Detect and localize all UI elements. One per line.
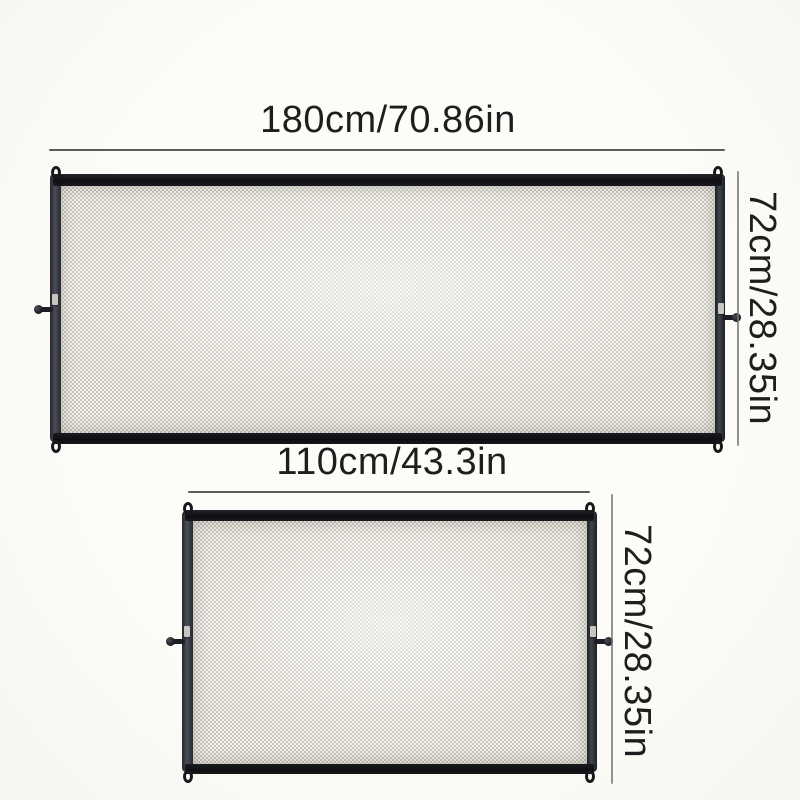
side-hook-icon	[594, 637, 611, 646]
hook-mount-tag	[184, 626, 190, 637]
gate-small-height-label: 72cm/28.35in	[616, 509, 656, 774]
side-hook-icon	[168, 637, 185, 646]
corner-loop-icon	[183, 502, 193, 515]
gate-large-height-label: 72cm/28.35in	[741, 173, 781, 444]
gate-small-bottom-bar	[185, 764, 594, 774]
gate-large-graphic	[50, 172, 725, 444]
gate-small-width-dimension-line	[188, 491, 590, 493]
corner-loop-icon	[585, 502, 595, 515]
gate-small-graphic	[182, 509, 597, 774]
gate-small-top-bar	[185, 510, 594, 521]
gate-large-top-bar	[53, 174, 722, 186]
product-size-diagram: 180cm/70.86in 72cm/28.35in 110cm	[0, 0, 800, 800]
corner-loop-icon	[51, 166, 61, 179]
corner-loop-icon	[183, 770, 193, 783]
gate-large-width-dimension-line	[49, 149, 725, 151]
side-hook-icon	[36, 305, 53, 314]
gate-large-height-dimension-line	[737, 171, 739, 446]
corner-loop-icon	[713, 440, 723, 453]
gate-small-mesh-panel	[192, 521, 588, 764]
corner-loop-icon	[585, 770, 595, 783]
hook-mount-tag	[590, 626, 596, 637]
corner-loop-icon	[713, 166, 723, 179]
gate-large-mesh-panel	[60, 185, 716, 434]
hook-mount-tag	[52, 294, 58, 305]
gate-small-width-label: 110cm/43.3in	[186, 440, 598, 484]
corner-loop-icon	[51, 440, 61, 453]
gate-small-height-dimension-line	[611, 494, 613, 784]
gate-large-width-label: 180cm/70.86in	[50, 98, 726, 142]
